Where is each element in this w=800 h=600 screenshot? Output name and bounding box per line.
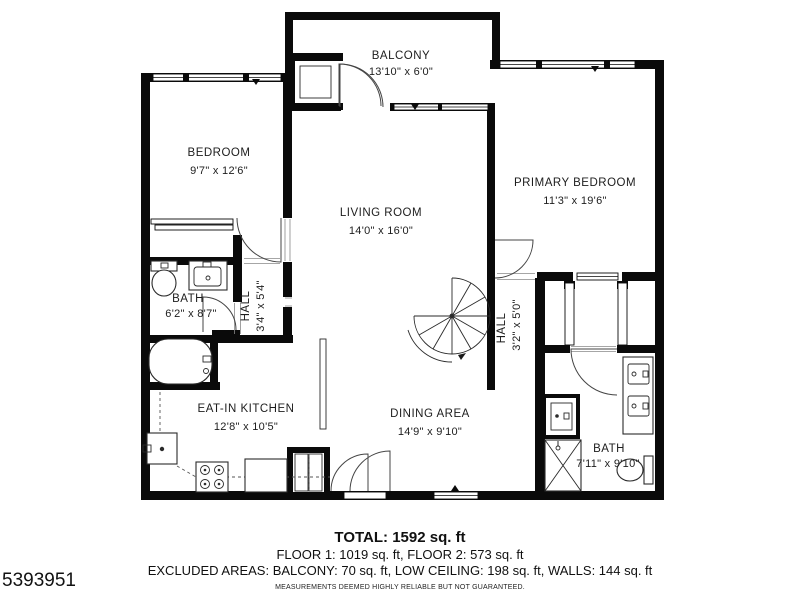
kitchen-counter [245, 459, 287, 492]
bath-right-door [571, 349, 617, 395]
bathtub [149, 339, 212, 384]
balcony-label: BALCONY [372, 50, 430, 62]
double-vanity [623, 357, 653, 434]
kitchen-label: EAT-IN KITCHEN [198, 403, 295, 415]
washer [544, 396, 578, 437]
bath-right-label: BATH [593, 443, 625, 455]
living-room-dims: 14'0" x 16'0" [349, 225, 413, 237]
total-area-text: TOTAL: 1592 sq. ft [0, 529, 800, 546]
dining-door-leaf-1 [350, 451, 390, 491]
sink-left-bath [189, 261, 227, 290]
toilet-left [151, 261, 177, 296]
spiral-staircase [408, 278, 490, 362]
hall-right-label: HALL [496, 313, 508, 344]
disclaimer-text: MEASUREMENTS DEEMED HIGHLY RELIABLE BUT … [0, 584, 800, 591]
bedroom-dims: 9'7" x 12'6" [190, 165, 248, 177]
footer: TOTAL: 1592 sq. ft FLOOR 1: 1019 sq. ft,… [0, 529, 800, 591]
balcony-dims: 13'10" x 6'0" [369, 66, 433, 78]
bedroom-closet-doors [151, 219, 233, 230]
primary-bedroom-door [495, 240, 533, 278]
living-room-label: LIVING ROOM [340, 207, 422, 219]
primary-bedroom-dims: 11'3" x 19'6" [543, 195, 606, 207]
hall-left-label: HALL [240, 291, 252, 322]
bath-left-dims: 6'2" x 8'7" [165, 308, 216, 320]
dining-dims: 14'9" x 9'10" [398, 426, 462, 438]
dining-label: DINING AREA [390, 408, 470, 420]
primary-closet [565, 273, 627, 345]
dining-door-leaf-2 [331, 454, 368, 491]
bedroom-door [237, 218, 281, 262]
excluded-areas-text: EXCLUDED AREAS: BALCONY: 70 sq. ft, LOW … [0, 563, 800, 578]
balcony-storage-closet [287, 53, 381, 110]
bath-right-dims: 7'11" x 9'10" [576, 458, 639, 470]
listing-id: 5393951 [2, 570, 76, 592]
kitchen-peninsula [320, 339, 326, 429]
bath-left-label: BATH [172, 293, 204, 305]
floorplan-page: BALCONY 13'10" x 6'0" BEDROOM 9'7" x 12'… [0, 0, 800, 600]
floor-areas-text: FLOOR 1: 1019 sq. ft, FLOOR 2: 573 sq. f… [0, 547, 800, 562]
hall-left-dims: 3'4" x 5'4" [255, 280, 267, 331]
primary-bedroom-label: PRIMARY BEDROOM [514, 177, 636, 189]
hall-right-dims: 3'2" x 5'0" [511, 299, 523, 350]
kitchen-sink [143, 433, 177, 464]
floorplan-drawing: BALCONY 13'10" x 6'0" BEDROOM 9'7" x 12'… [0, 0, 800, 528]
bedroom-label: BEDROOM [188, 147, 251, 159]
stove [196, 462, 228, 492]
kitchen-dims: 12'8" x 10'5" [214, 421, 278, 433]
